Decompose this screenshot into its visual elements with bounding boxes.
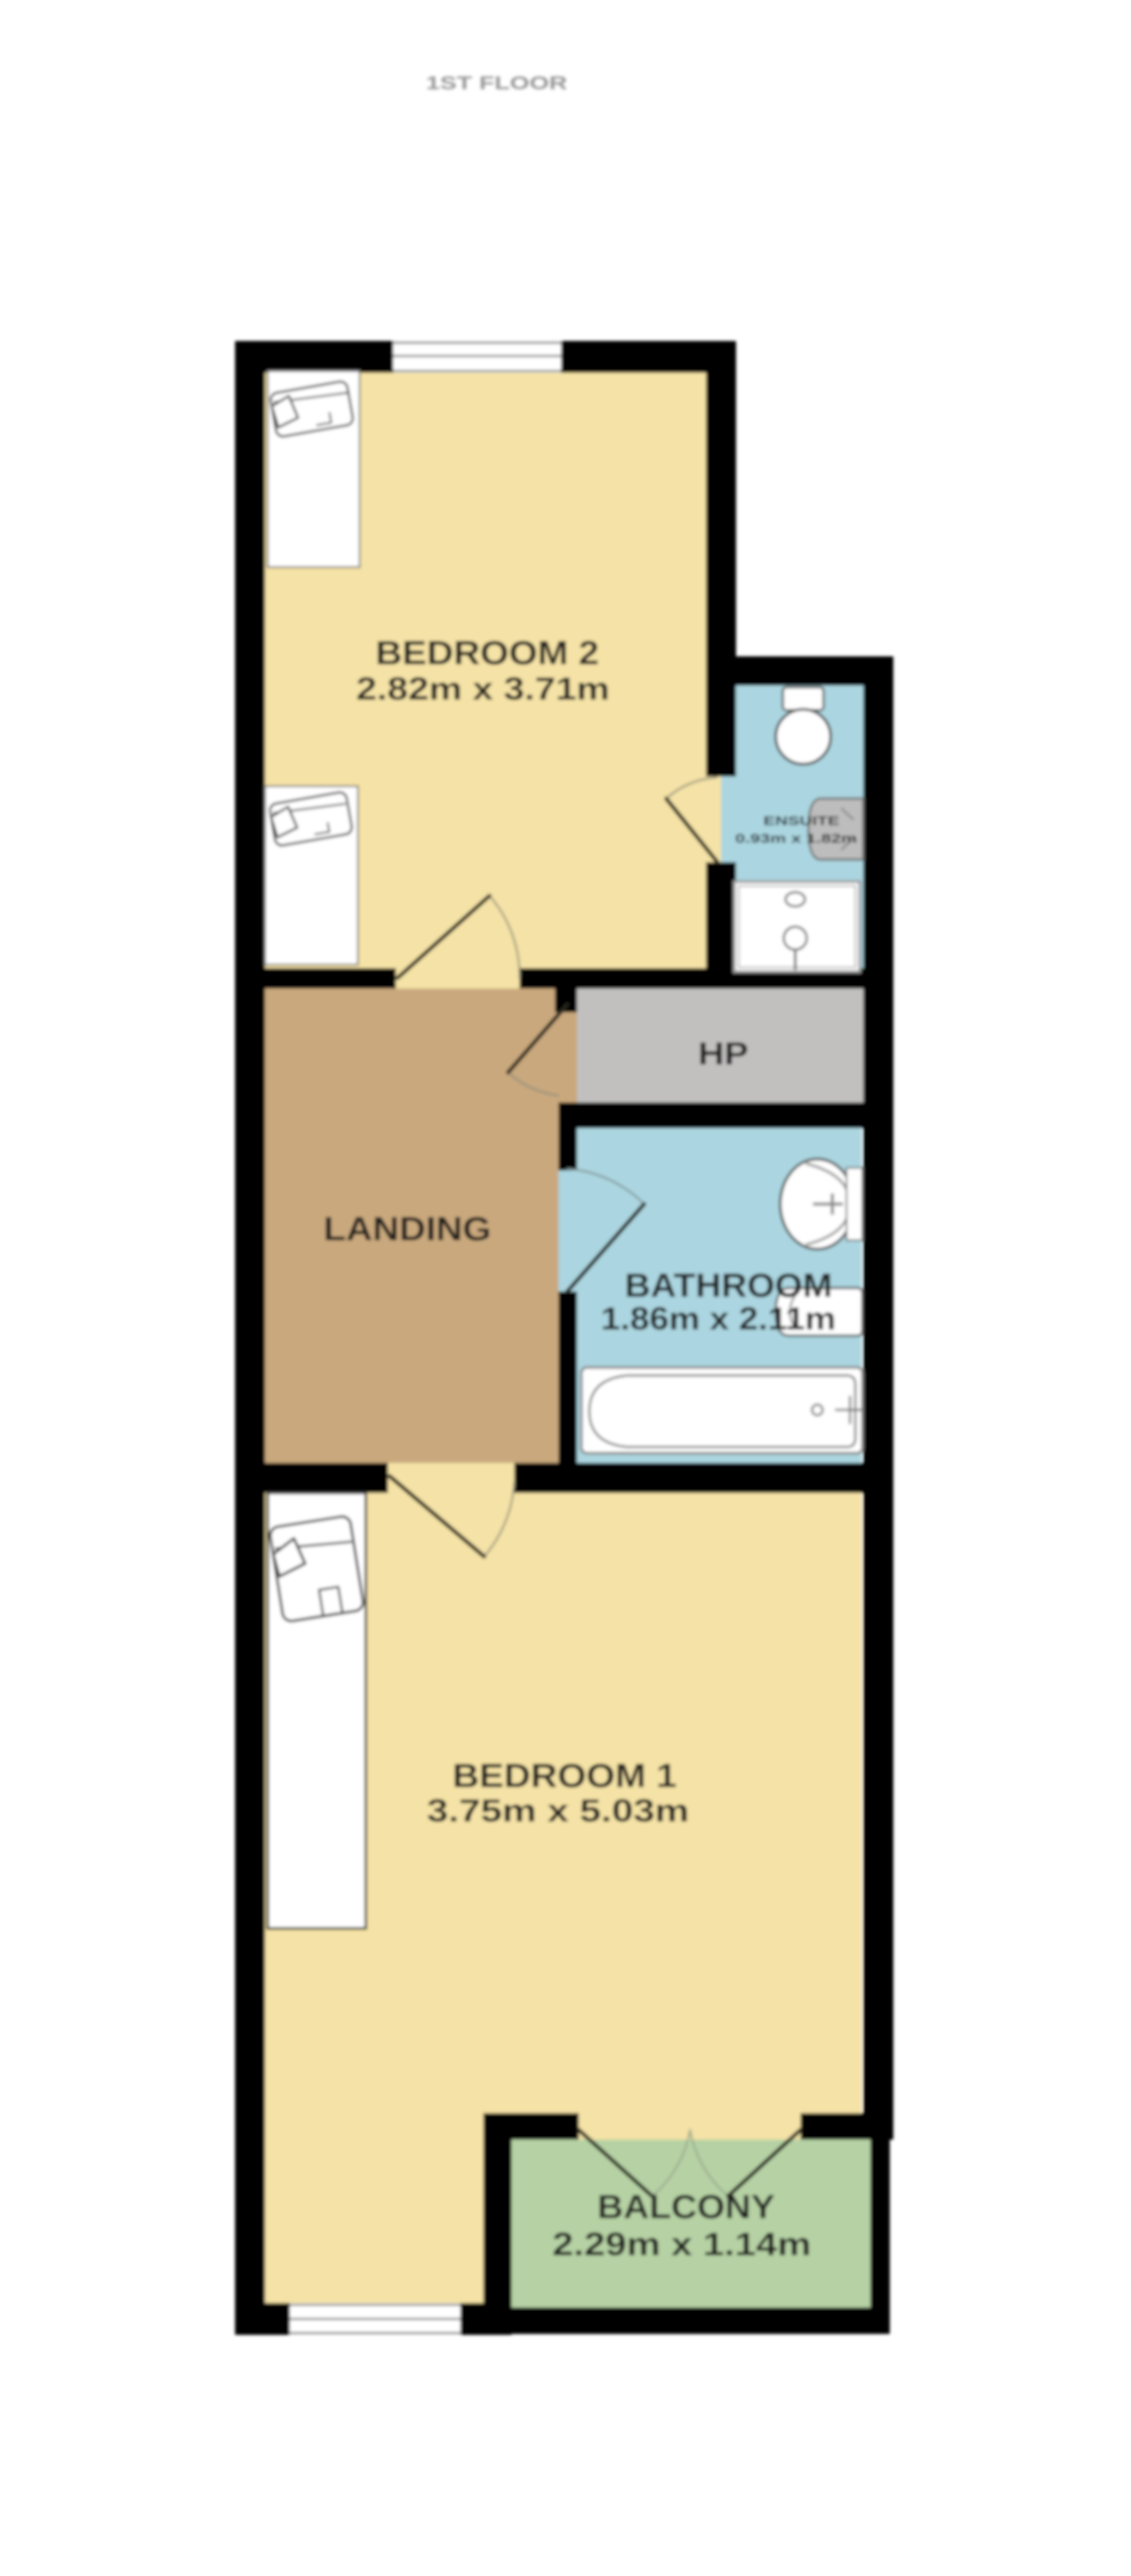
svg-text:0.93m x 1.82m: 0.93m x 1.82m [735, 831, 857, 846]
svg-text:ENSUITE: ENSUITE [763, 814, 839, 829]
svg-text:BALCONY: BALCONY [597, 2189, 775, 2226]
svg-text:BEDROOM 2: BEDROOM 2 [376, 635, 599, 672]
svg-text:2.82m x 3.71m: 2.82m x 3.71m [356, 671, 610, 707]
svg-text:BEDROOM 1: BEDROOM 1 [452, 1758, 677, 1795]
svg-text:BATHROOM: BATHROOM [625, 1268, 832, 1305]
svg-text:LANDING: LANDING [323, 1211, 491, 1248]
svg-text:3.75m x 5.03m: 3.75m x 5.03m [427, 1792, 689, 1829]
svg-text:HP: HP [698, 1035, 748, 1072]
svg-text:1.86m x 2.11m: 1.86m x 2.11m [601, 1300, 836, 1337]
svg-text:2.29m x 1.14m: 2.29m x 1.14m [552, 2226, 811, 2262]
svg-text:1ST FLOOR: 1ST FLOOR [426, 73, 567, 94]
